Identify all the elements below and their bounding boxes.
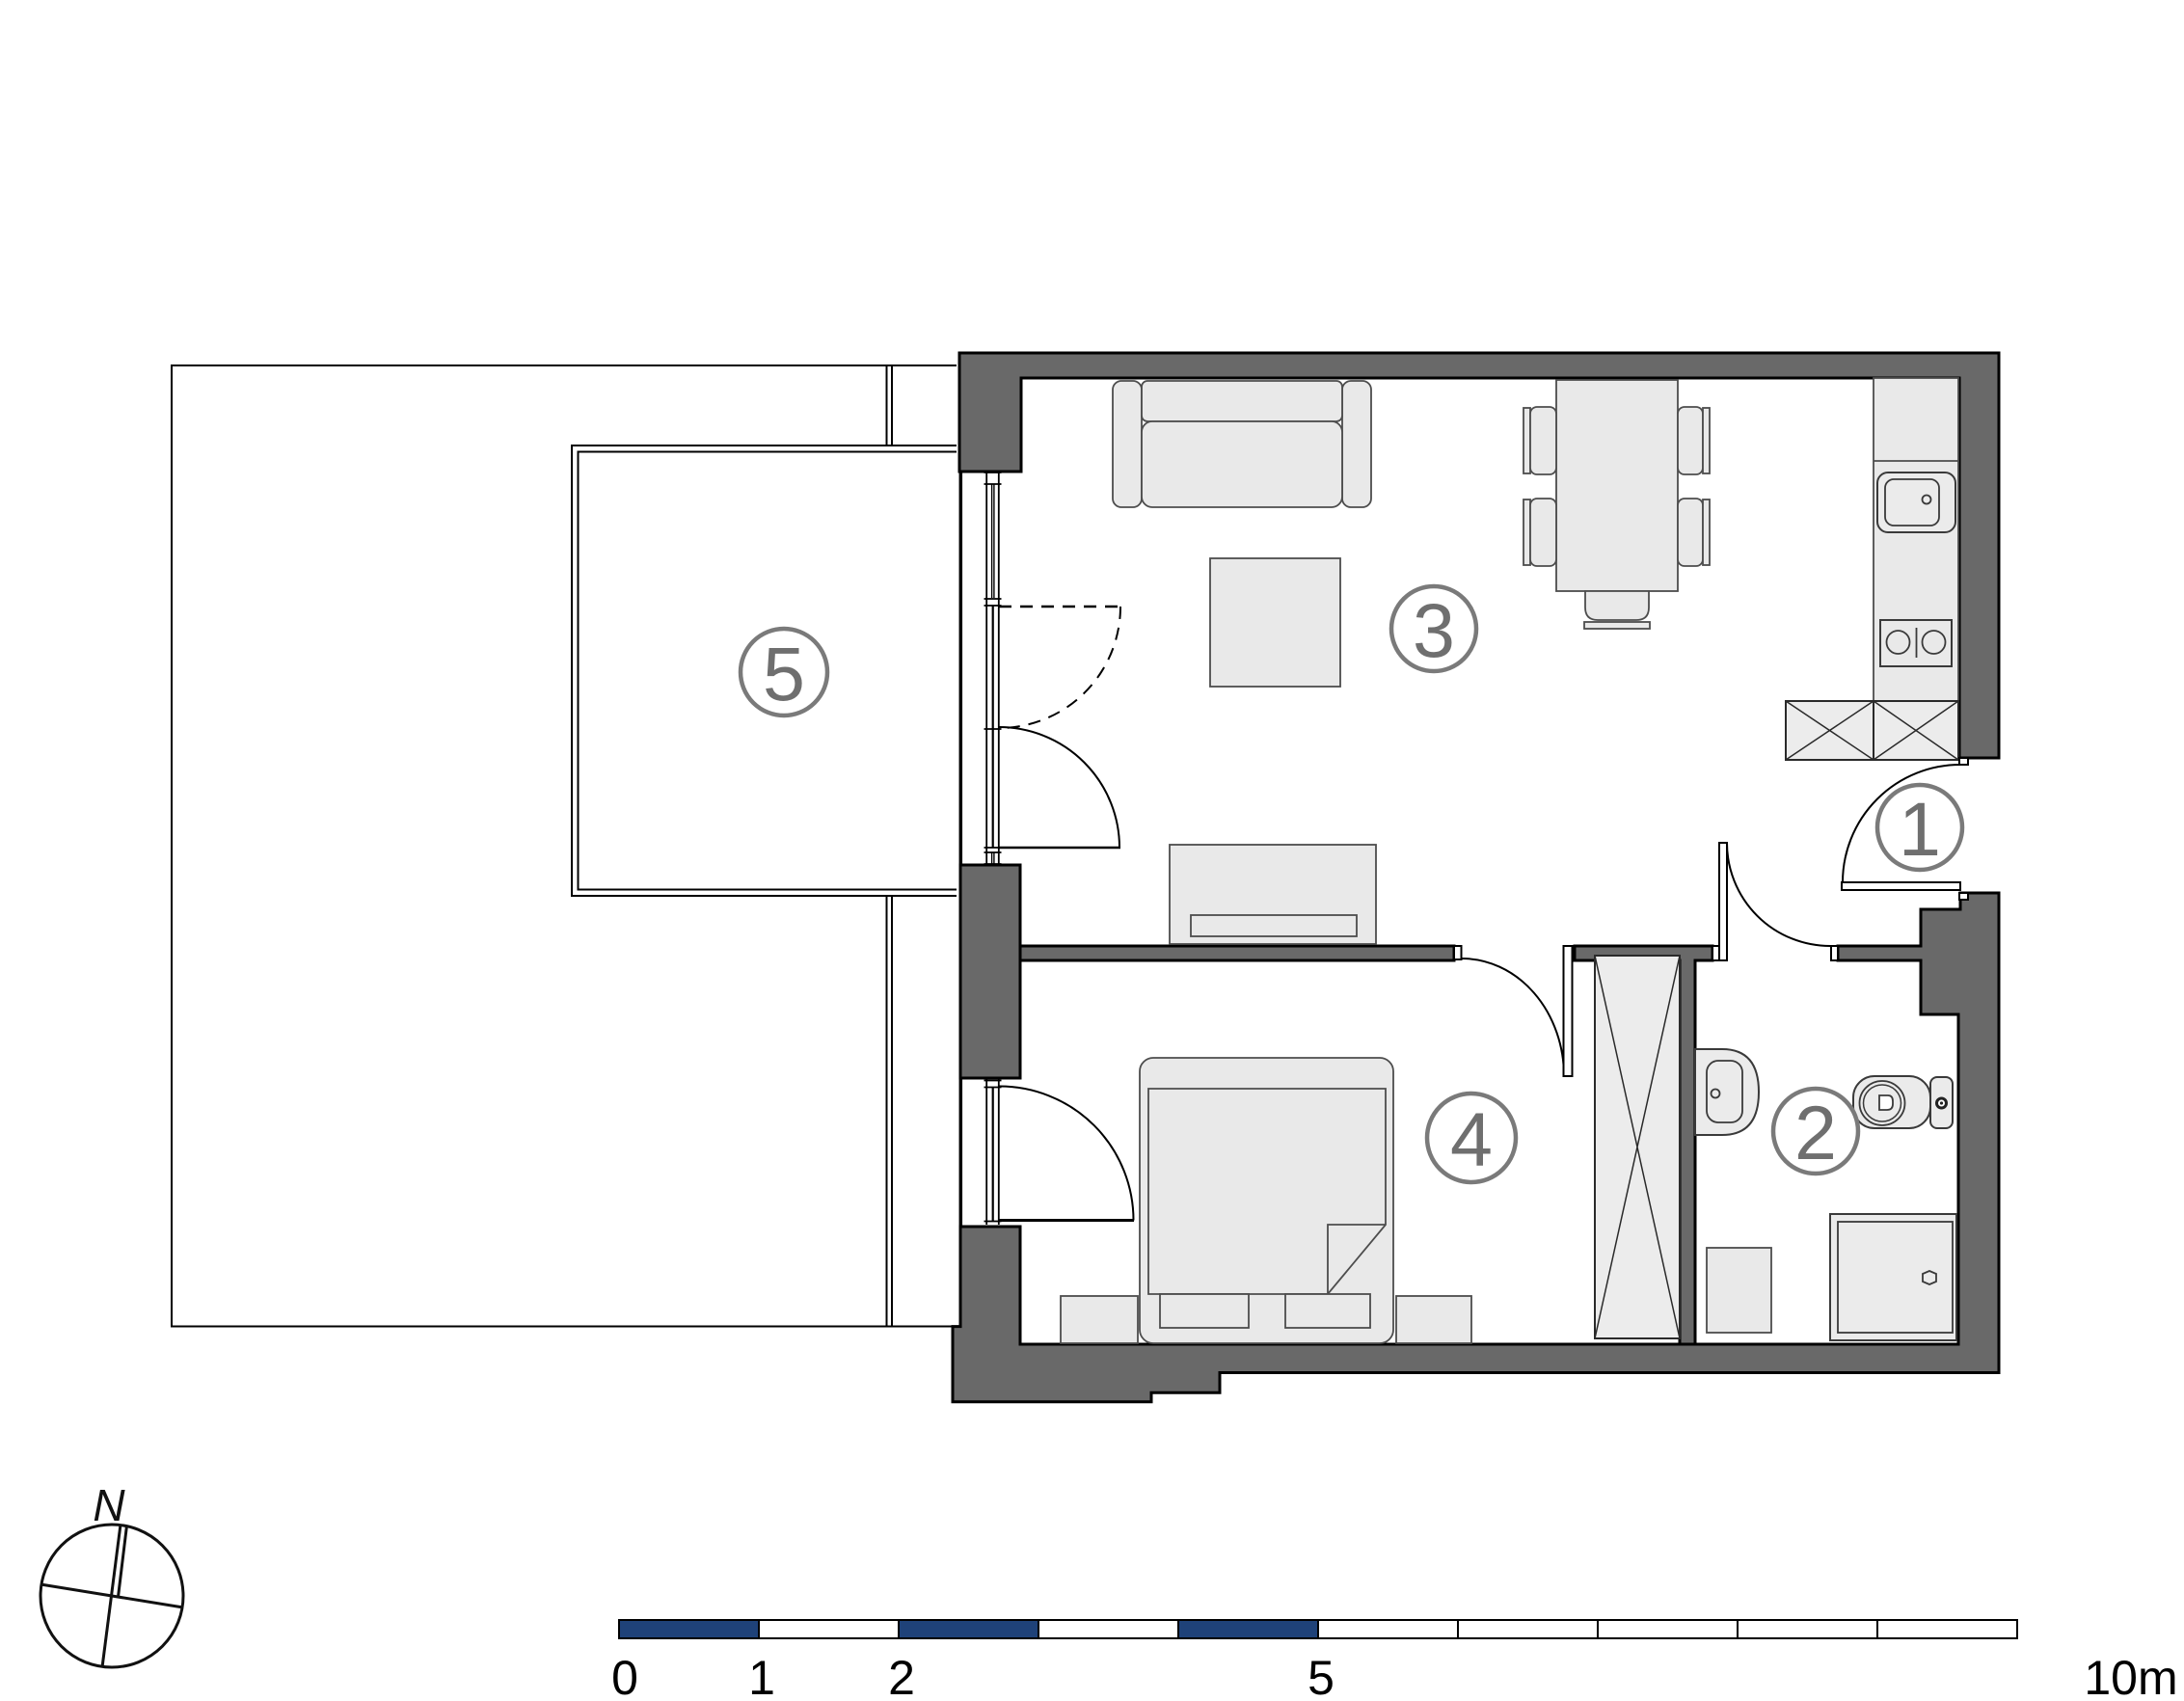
svg-text:10m: 10m xyxy=(2084,1651,2177,1701)
svg-text:N: N xyxy=(93,1480,125,1530)
svg-text:4: 4 xyxy=(1450,1096,1493,1182)
svg-text:0: 0 xyxy=(611,1651,638,1701)
svg-text:2: 2 xyxy=(888,1651,915,1701)
svg-text:1: 1 xyxy=(1899,786,1941,872)
svg-text:3: 3 xyxy=(1413,587,1455,673)
svg-text:1: 1 xyxy=(748,1651,775,1701)
svg-text:5: 5 xyxy=(763,631,805,716)
svg-text:2: 2 xyxy=(1794,1090,1837,1175)
svg-text:5: 5 xyxy=(1308,1651,1335,1701)
